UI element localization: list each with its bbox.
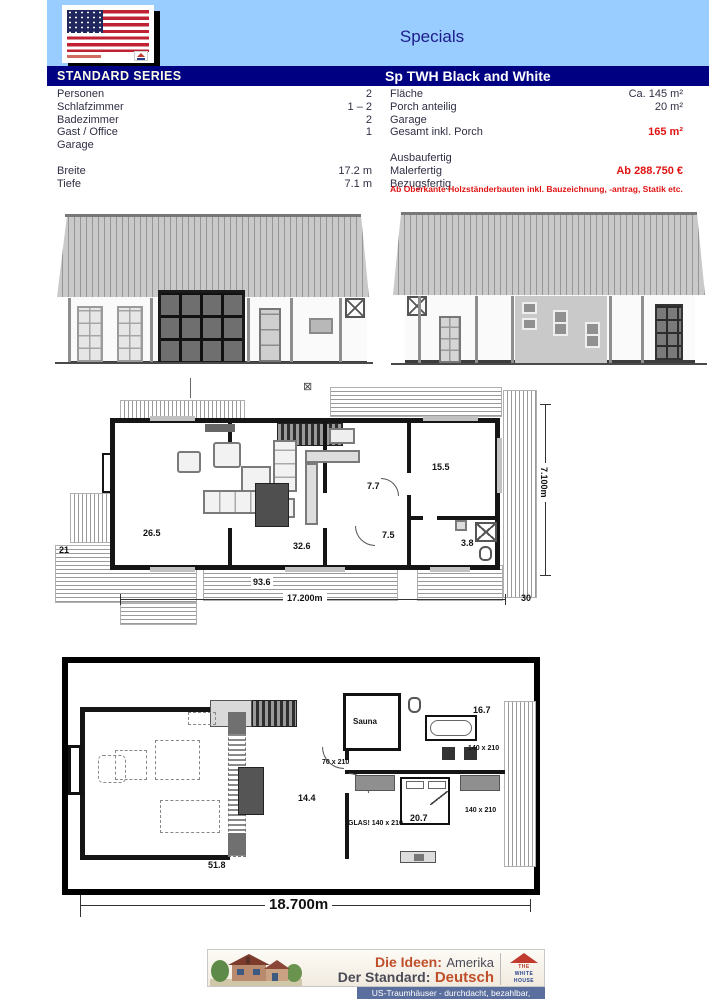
shower — [475, 522, 497, 542]
white-house-mini-icon — [134, 51, 148, 61]
footer-tagline: US-Traumhäuser - durchdacht, bezahlbar, … — [357, 987, 545, 999]
bay-window — [102, 453, 112, 493]
deck-label: 21 — [59, 545, 69, 555]
spec-row: Badezimmer2 — [47, 114, 380, 127]
small-window — [522, 302, 537, 314]
wardrobe — [355, 775, 395, 791]
us-flag-logo — [62, 5, 154, 63]
flag-caption-text — [67, 55, 101, 58]
room-area-label: 14.4 — [298, 793, 316, 803]
spec-row: Garage — [47, 139, 380, 152]
pantry-shelf — [329, 428, 355, 444]
furniture-dashed — [98, 755, 126, 783]
small-window — [585, 322, 600, 348]
spec-row-total: Gesamt inkl. Porch165 m² — [380, 126, 709, 139]
north-mark: ⊠ — [303, 380, 312, 393]
dining-table — [238, 767, 264, 815]
small-window — [522, 318, 537, 330]
cross-brace — [407, 296, 427, 316]
spec-row-price: MalerfertigAb 288.750 € — [380, 165, 709, 178]
spec-row: Gast / Office1 — [47, 126, 380, 139]
sauna-label: Sauna — [353, 717, 377, 726]
room-area-label: 16.7 — [473, 705, 491, 715]
furniture-dashed — [155, 740, 200, 780]
ground-line — [391, 363, 707, 365]
washer — [455, 520, 467, 531]
footer-banner: Die Ideen: Amerika Der Standard: Deutsch… — [207, 949, 545, 987]
kitchen-counter — [305, 450, 360, 463]
brochure-page: Specials STANDARD SERIES Sp TWH Black an… — [0, 0, 709, 1004]
spec-row: Tiefe7.1 m — [47, 178, 380, 191]
page-title: Specials — [302, 27, 562, 47]
divider — [500, 953, 501, 985]
toilet — [479, 546, 492, 561]
dresser — [400, 851, 436, 863]
floor-plan-1: ⊠ — [55, 378, 615, 633]
roof — [57, 215, 369, 297]
room-area-label: 26.5 — [143, 528, 161, 538]
room-area-label: 15.5 — [432, 462, 450, 472]
french-door — [77, 306, 103, 362]
spec-row: Ausbaufertig — [380, 152, 709, 165]
width-dimension: 18.700m — [265, 896, 332, 913]
window — [497, 438, 502, 493]
window-size-label: GLAS! 140 x 210 — [348, 820, 403, 827]
toilet — [408, 697, 421, 713]
roof-icon — [510, 953, 538, 963]
spec-row: FlächeCa. 145 m² — [380, 88, 709, 101]
spec-row: Personen2 — [47, 88, 380, 101]
spec-row: Schlafzimmer1 – 2 — [47, 101, 380, 114]
bathtub — [425, 715, 477, 741]
price-disclaimer: Ab Oberkante Holzständerbauten inkl. Bau… — [390, 184, 705, 194]
ground-line — [55, 362, 373, 364]
elevation-front-drawing — [47, 210, 377, 368]
spec-row: Porch anteilig20 m² — [380, 101, 709, 114]
entry-door — [259, 308, 281, 362]
armchair — [177, 451, 201, 473]
width-dimension: 17.200m — [283, 593, 327, 603]
small-window — [309, 318, 333, 334]
depth-dimension: 7.100m — [539, 463, 549, 502]
total-area-label: 93.6 — [251, 577, 273, 587]
room-area-label: 32.6 — [293, 541, 311, 551]
side-porch — [503, 390, 537, 598]
deck-label: 30 — [521, 593, 531, 603]
flag-stripes — [67, 10, 149, 52]
side-porch — [504, 701, 536, 867]
double-door — [655, 304, 683, 360]
spec-row: Garage — [380, 114, 709, 127]
cross-brace — [345, 298, 365, 318]
flag-canton — [67, 10, 103, 33]
white-house-logo: THE WHITE HOUSE — [504, 953, 544, 986]
room-area-label: 3.8 — [461, 538, 474, 548]
dining-table — [255, 483, 289, 527]
window — [150, 567, 195, 572]
deck — [120, 603, 197, 625]
sink — [442, 747, 455, 760]
brand-line-2: Der Standard: Deutsch — [338, 969, 494, 987]
window — [423, 416, 478, 421]
bay-window — [68, 745, 82, 795]
furniture-dashed — [160, 800, 220, 833]
sideboard — [205, 424, 235, 432]
french-door — [117, 306, 143, 362]
window-size-label: 140 x 210 — [468, 745, 499, 752]
wardrobe — [460, 775, 500, 791]
elevation-rear-drawing — [389, 210, 709, 368]
header-band: Specials — [47, 0, 709, 66]
window — [430, 567, 470, 572]
spec-row: Breite17.2 m — [47, 165, 380, 178]
window — [285, 567, 345, 572]
room-area-label: 7.7 — [367, 481, 380, 491]
stairs — [252, 700, 297, 727]
kitchen-counter — [305, 463, 318, 525]
footer: Die Ideen: Amerika Der Standard: Deutsch… — [207, 947, 545, 999]
floor-plan-2: Sauna 51.8 14.4 16.7 20.7 70 x 210 — [60, 655, 555, 923]
spec-table-right: FlächeCa. 145 m² Porch anteilig20 m² Gar… — [380, 88, 709, 190]
spec-table-left: Personen2 Schlafzimmer1 – 2 Badezimmer2 … — [47, 88, 380, 190]
room-area-label: 7.5 — [382, 530, 395, 540]
window-size-label: 70 x 210 — [322, 759, 349, 766]
survey-tick — [190, 378, 191, 398]
room-area-label: 51.8 — [208, 860, 226, 870]
small-window — [553, 310, 568, 336]
model-name: Sp TWH Black and White — [385, 68, 551, 84]
armchair — [213, 442, 241, 468]
title-bar: STANDARD SERIES Sp TWH Black and White — [47, 66, 709, 86]
window-size-label: 140 x 210 — [465, 807, 496, 814]
glass-garage-door — [158, 290, 245, 364]
entry-door — [439, 316, 461, 363]
house-illustration — [210, 951, 302, 986]
roof — [393, 213, 705, 295]
deck — [330, 387, 502, 417]
window — [150, 416, 195, 421]
room-area-label: 20.7 — [410, 813, 428, 823]
furniture-dashed — [188, 712, 216, 725]
series-label: STANDARD SERIES — [57, 69, 182, 83]
